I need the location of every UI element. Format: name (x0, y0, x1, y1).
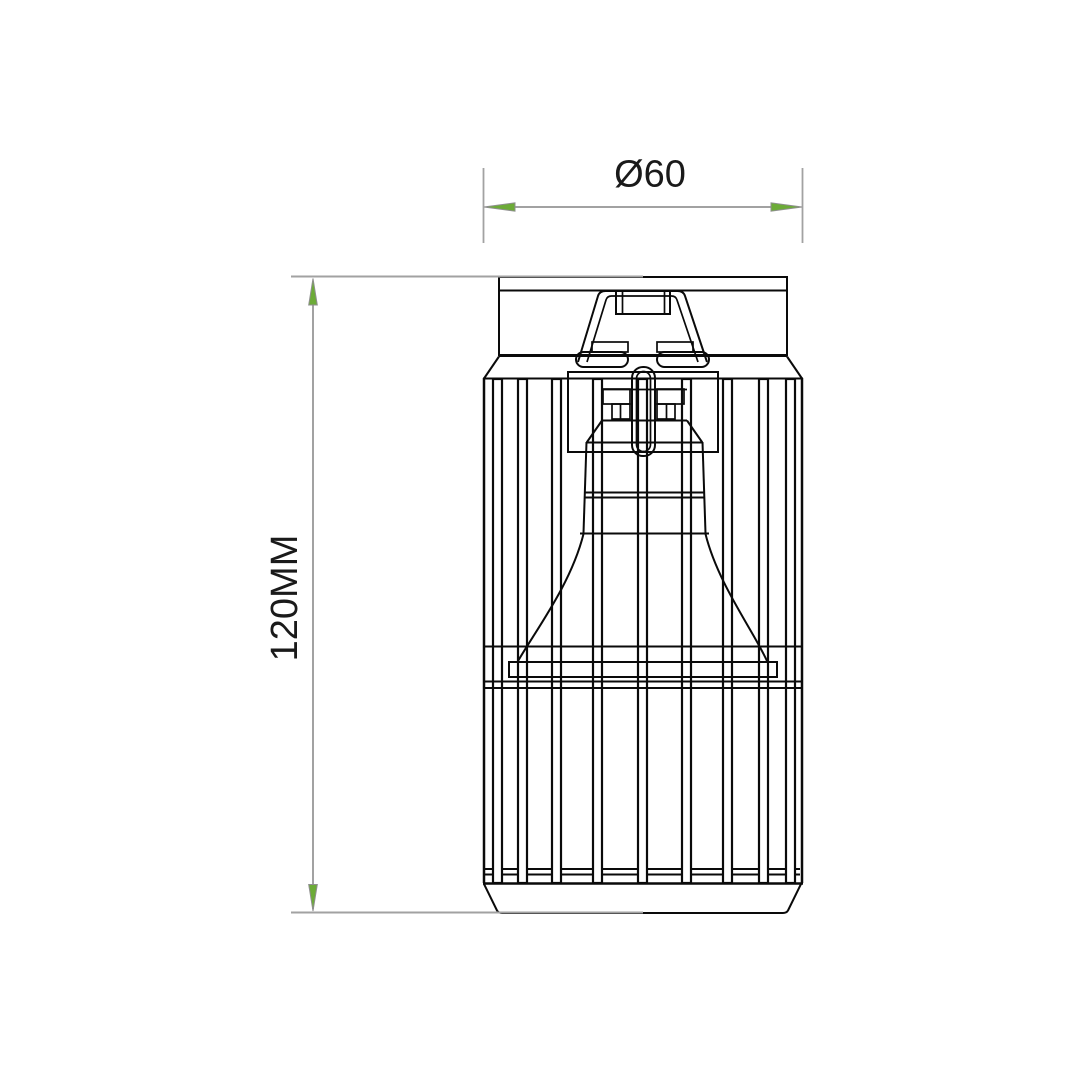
canopy-body (499, 277, 787, 355)
terminal-block-right (657, 389, 684, 404)
bulb-neck-left (584, 442, 587, 533)
cage-bar (593, 379, 602, 883)
cage-rim-bottom (483, 884, 803, 914)
diameter-label: Ø60 (614, 154, 686, 196)
terminal-block-left (603, 389, 630, 404)
cage-bar (786, 379, 795, 883)
cage-bar (552, 379, 561, 883)
cage-bar (759, 379, 768, 883)
arrow-right-icon (771, 203, 802, 211)
bulb-bell-right (706, 534, 768, 661)
fixture-drawing (483, 277, 803, 913)
arrow-left-icon (484, 203, 515, 211)
rim-flare-left (484, 357, 499, 379)
cage-bar (518, 379, 527, 883)
diameter-dimension: Ø60 (484, 154, 803, 244)
technical-drawing: Ø60 120MM (0, 0, 1080, 1080)
arrow-up-icon (309, 279, 318, 306)
canopy (499, 277, 787, 355)
rim-chamfer (484, 884, 801, 913)
bracket-foot-step-right (657, 342, 693, 352)
height-label: 120MM (264, 535, 306, 662)
cage-bar (493, 379, 502, 883)
bracket-center-box (616, 291, 670, 314)
cage-bar (682, 379, 691, 883)
cage-bar (723, 379, 732, 883)
bracket-foot-step-left (592, 342, 628, 352)
rim-flare-right (787, 357, 802, 379)
arrow-down-icon (309, 885, 318, 912)
drawing-page: Ø60 120MM (0, 0, 1080, 1080)
bulb-neck-right (703, 442, 706, 533)
